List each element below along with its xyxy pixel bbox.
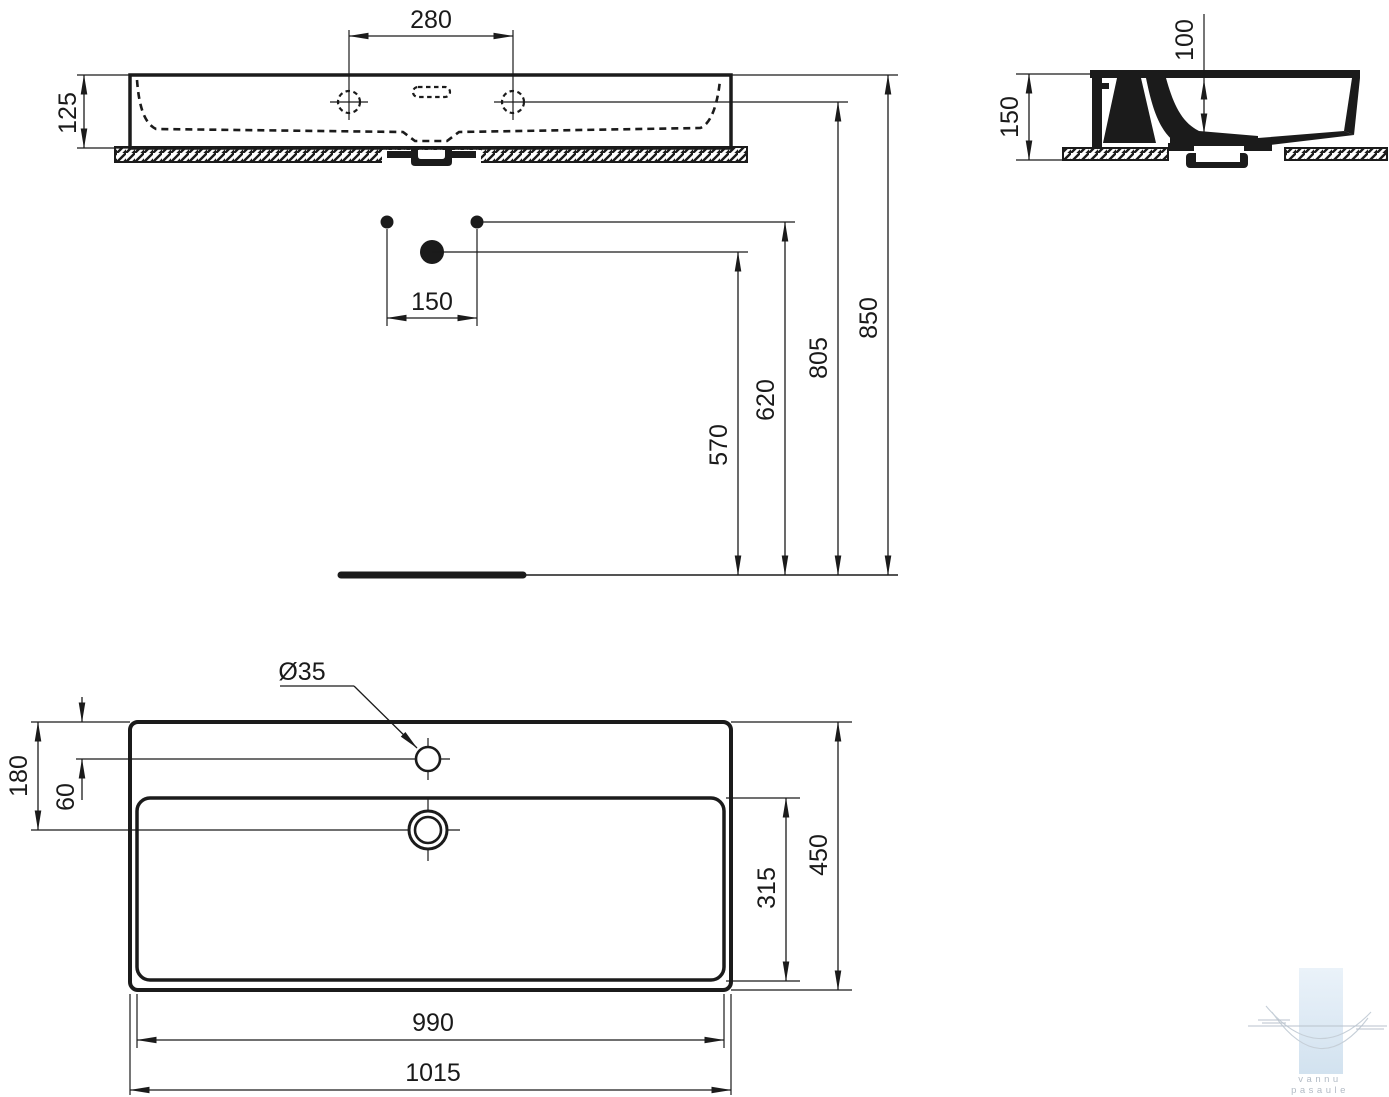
- side-drain-slot: [1194, 146, 1244, 151]
- side-right-wall: [1344, 78, 1360, 135]
- dim-label-990: 990: [412, 1009, 454, 1037]
- dim-label-125: 125: [54, 92, 82, 134]
- dim-label-450: 450: [805, 834, 833, 876]
- washbasin-dimension-drawing: 280 125 150 570 620 805 850 150 100: [0, 0, 1389, 1097]
- dim-label-180: 180: [5, 755, 33, 797]
- dim-label-100: 100: [1171, 19, 1199, 61]
- leader-arrow: [354, 686, 417, 748]
- technical-drawing-page: 280 125 150 570 620 805 850 150 100: [0, 0, 1389, 1097]
- side-bowl-left-wall: [1146, 78, 1258, 147]
- front-view: 280 125 150 570 620 805 850: [54, 6, 898, 575]
- plan-tap-hole-icon: [416, 747, 440, 771]
- bowl-hidden-line: [137, 80, 720, 141]
- overflow-slot: [413, 87, 450, 97]
- watermark: vannu pasaule: [1248, 968, 1387, 1096]
- supply-point-left: [381, 216, 394, 229]
- dim-label-850: 850: [855, 297, 883, 339]
- dim-label-60: 60: [52, 783, 80, 811]
- side-shelf-hatch-left: [1063, 148, 1168, 160]
- dim-label-570: 570: [705, 424, 733, 466]
- watermark-text-line1: vannu: [1298, 1074, 1341, 1085]
- dim-label-150-side: 150: [996, 96, 1024, 138]
- watermark-text-line2: pasaule: [1291, 1085, 1349, 1096]
- dim-label-805: 805: [805, 337, 833, 379]
- drain-flange-left: [387, 151, 411, 158]
- side-shelf-hatch-right: [1285, 148, 1387, 160]
- dim-label-150-front: 150: [411, 288, 453, 316]
- drain-flange-right: [452, 151, 476, 158]
- dim-label-280: 280: [410, 6, 452, 34]
- side-drain-trap-inner: [1196, 153, 1240, 162]
- side-mounting-pillar: [1103, 78, 1156, 143]
- dim-label-620: 620: [752, 379, 780, 421]
- side-rim: [1090, 70, 1360, 78]
- plan-view: Ø35 180 60 450 315 990 1015: [5, 658, 852, 1095]
- dim-label-dia35: Ø35: [278, 658, 325, 686]
- watermark-bar: [1299, 968, 1343, 1074]
- dim-label-315: 315: [753, 867, 781, 909]
- side-left-wall: [1092, 78, 1102, 148]
- dim-label-1015: 1015: [405, 1059, 461, 1087]
- side-view: 150 100: [996, 14, 1387, 168]
- side-bracket-tick: [1102, 83, 1109, 89]
